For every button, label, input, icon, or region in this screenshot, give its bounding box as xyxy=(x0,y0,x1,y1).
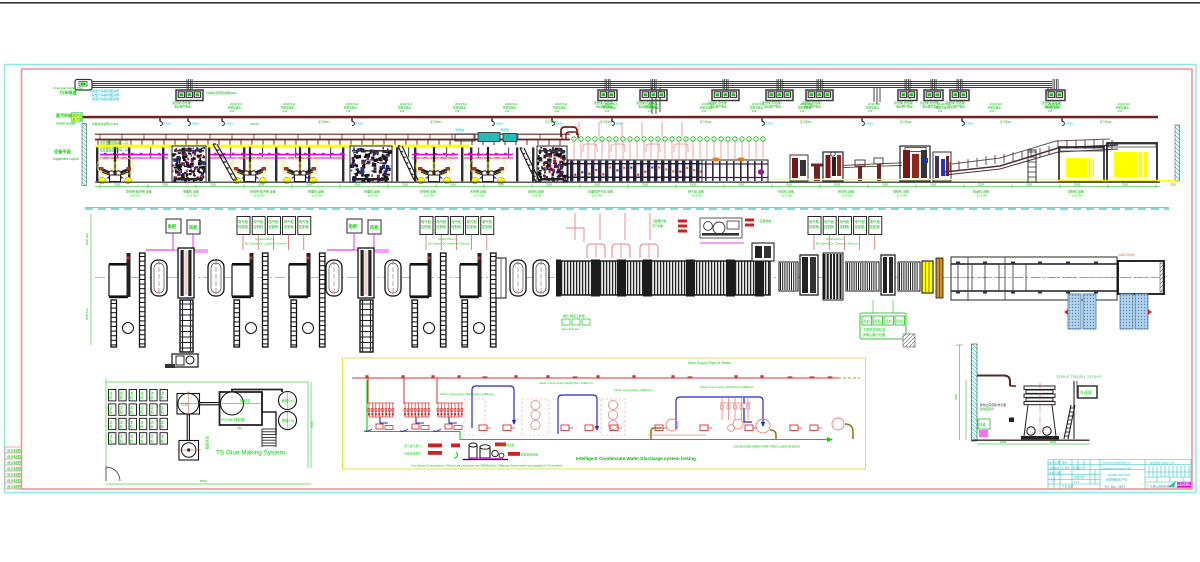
svg-text:电气柜: 电气柜 xyxy=(824,219,835,224)
svg-text:控制柜: 控制柜 xyxy=(238,224,249,229)
svg-text:电气柜: 电气柜 xyxy=(855,219,866,224)
svg-text:7000: 7000 xyxy=(310,421,314,428)
svg-text:By Carton Or Customer Electric: By Carton Or Customer Electric xyxy=(816,242,859,246)
svg-text:风机: 风机 xyxy=(189,224,198,231)
svg-text:2016 5x4: 2016 5x4 xyxy=(505,102,518,106)
svg-text:风机: 风机 xyxy=(863,319,870,324)
svg-text:电气柜: 电气柜 xyxy=(299,219,310,224)
svg-text:Main Supply Pipe of Steam: Main Supply Pipe of Steam xyxy=(688,361,731,365)
svg-text:铁架固定件: 铁架固定件 xyxy=(980,407,994,411)
svg-text:原纸架吸盘: 原纸架吸盘 xyxy=(1046,106,1059,110)
svg-text:DN50↓: DN50↓ xyxy=(356,122,364,126)
svg-text:控制柜: 控制柜 xyxy=(268,224,279,229)
svg-text:(2.5 万): (2.5 万) xyxy=(532,194,542,198)
svg-text:2x6: 2x6 xyxy=(605,109,610,113)
svg-text:控制柜: 控制柜 xyxy=(855,224,866,229)
svg-text:控制柜: 控制柜 xyxy=(451,224,462,229)
svg-text:(2.5 万): (2.5 万) xyxy=(1072,194,1082,198)
svg-text:2550: 2550 xyxy=(882,183,889,187)
svg-text:里胶CM₁: 里胶CM₁ xyxy=(282,418,296,423)
svg-text:蒸汽管DN: 蒸汽管DN xyxy=(600,120,612,124)
svg-text:原纸架吸盘: 原纸架吸盘 xyxy=(750,106,763,110)
svg-text:签名: 签名 xyxy=(1062,461,1068,465)
svg-text:蒸汽控制: 蒸汽控制 xyxy=(652,224,663,228)
svg-text:Equipment Layout: Equipment Layout xyxy=(53,157,79,161)
svg-text:控制柜: 控制柜 xyxy=(839,224,850,229)
svg-text:设计制图: 设计制图 xyxy=(7,454,21,459)
svg-text:DN50↓: DN50↓ xyxy=(616,122,624,126)
svg-text:风机: 风机 xyxy=(874,319,881,324)
svg-text:2016 5x4: 2016 5x4 xyxy=(990,102,1003,106)
svg-text:2550: 2550 xyxy=(786,183,793,187)
svg-text:蒸汽管DN: 蒸汽管DN xyxy=(430,120,442,124)
svg-text:2550: 2550 xyxy=(306,183,313,187)
svg-text:2550: 2550 xyxy=(258,183,265,187)
svg-text:控制柜: 控制柜 xyxy=(421,224,432,229)
svg-text:设计制图: 设计制图 xyxy=(7,460,21,465)
svg-text:蒸汽管DN: 蒸汽管DN xyxy=(700,120,712,124)
svg-text:2550: 2550 xyxy=(498,183,505,187)
svg-text:2016 5x4: 2016 5x4 xyxy=(702,102,715,106)
svg-text:电气柜: 电气柜 xyxy=(451,219,462,224)
svg-text:2550: 2550 xyxy=(738,183,745,187)
svg-text:上胶量控制: 上胶量控制 xyxy=(652,219,666,223)
svg-text:风管由客户自备: 风管由客户自备 xyxy=(863,332,886,337)
svg-text:设计制图: 设计制图 xyxy=(7,472,21,477)
svg-text:标准化: 标准化 xyxy=(1062,466,1070,470)
svg-text:2550: 2550 xyxy=(162,183,169,187)
svg-text:Speed Display Screen: Speed Display Screen xyxy=(1056,374,1102,379)
svg-text:电气柜: 电气柜 xyxy=(268,219,279,224)
svg-text:2x6: 2x6 xyxy=(1118,109,1123,113)
svg-text:2550: 2550 xyxy=(210,183,217,187)
svg-text:WJ250-250-1SF: WJ250-250-1SF xyxy=(1108,473,1130,477)
svg-text:蒸汽管DN: 蒸汽管DN xyxy=(1000,120,1012,124)
svg-text:(2.5 万): (2.5 万) xyxy=(692,194,702,198)
svg-text:原纸架吸盘: 原纸架吸盘 xyxy=(553,106,566,110)
svg-text:5250 160: 5250 160 xyxy=(85,308,89,320)
svg-text:2016 5x4: 2016 5x4 xyxy=(230,102,243,106)
svg-text:2550: 2550 xyxy=(1026,183,1033,187)
svg-text:Intelligent Condensate Water D: Intelligent Condensate Water Discharge s… xyxy=(576,456,696,461)
svg-text:设计制图: 设计制图 xyxy=(7,448,21,453)
svg-text:(2.5 万): (2.5 万) xyxy=(187,194,197,198)
svg-text:面胶CM₂: 面胶CM₂ xyxy=(282,398,296,403)
svg-text:特殊: 特殊 xyxy=(979,422,986,427)
svg-text:Steam Consumption 600Kg/Hour 1: Steam Consumption 600Kg/Hour 10Bar/prs xyxy=(440,392,495,396)
svg-text:设备平面: 设备平面 xyxy=(54,148,72,155)
svg-text:2x6: 2x6 xyxy=(752,109,757,113)
svg-text:2x6: 2x6 xyxy=(800,109,805,113)
svg-text:(2.5 万): (2.5 万) xyxy=(897,194,907,198)
svg-text:Control Room: Control Room xyxy=(255,237,274,241)
svg-text:电气柜: 电气柜 xyxy=(467,219,478,224)
svg-text:蒸汽管DN: 蒸汽管DN xyxy=(318,120,330,124)
svg-text:2016 5x4: 2016 5x4 xyxy=(605,102,618,106)
svg-text:原纸架吸盘: 原纸架吸盘 xyxy=(228,106,241,110)
svg-text:Steam Consumption 800Kg/Hour 1: Steam Consumption 800Kg/Hour 10Bar/prs xyxy=(539,381,594,385)
svg-text:Steam Consumption 900Kg/Hour 1: Steam Consumption 900Kg/Hour 10Bar/prs xyxy=(700,385,755,389)
svg-text:冷凝水回收: 冷凝水回收 xyxy=(500,443,514,447)
svg-text:(2.5 万): (2.5 万) xyxy=(842,194,852,198)
svg-text:设计: 设计 xyxy=(1049,461,1055,465)
svg-text:(2.5 万): (2.5 万) xyxy=(592,194,602,198)
svg-text:2550: 2550 xyxy=(834,183,841,187)
svg-text:广东佛山精锐机械有限公司: 广东佛山精锐机械有限公司 xyxy=(1147,485,1181,489)
svg-text:Condensate Water Main Pipe Low: Condensate Water Main Pipe Lower Bracket xyxy=(733,445,800,449)
svg-text:胶水管路: 胶水管路 xyxy=(205,436,210,450)
svg-text:1800: 1800 xyxy=(1000,440,1007,444)
svg-text:2016 5x4: 2016 5x4 xyxy=(1048,102,1061,106)
svg-text:控制柜: 控制柜 xyxy=(824,224,835,229)
svg-text:2016 5x4: 2016 5x4 xyxy=(283,102,296,106)
svg-text:2600: 2600 xyxy=(1050,440,1057,444)
svg-text:DN100: DN100 xyxy=(250,122,259,126)
svg-text:2550: 2550 xyxy=(930,183,937,187)
svg-text:原纸架吸盘: 原纸架吸盘 xyxy=(344,106,357,110)
svg-text:储胶区: 储胶区 xyxy=(240,398,251,403)
svg-text:2x6: 2x6 xyxy=(505,109,510,113)
svg-text:By Carton Or Customer Electric: By Carton Or Customer Electric xyxy=(245,242,288,246)
svg-text:DN50↓: DN50↓ xyxy=(966,122,974,126)
svg-text:5000 350: 5000 350 xyxy=(85,233,89,245)
svg-text:控制柜: 控制柜 xyxy=(253,224,264,229)
svg-text:蒸汽供给: 蒸汽供给 xyxy=(55,112,72,118)
svg-text:电柜: 电柜 xyxy=(168,223,177,230)
svg-text:(2.5 万): (2.5 万) xyxy=(474,194,484,198)
svg-text:2x6: 2x6 xyxy=(990,109,995,113)
svg-text:控制柜: 控制柜 xyxy=(299,224,310,229)
svg-text:2x6: 2x6 xyxy=(283,109,288,113)
svg-text:DN50↓: DN50↓ xyxy=(496,122,504,126)
svg-text:(2.5 万): (2.5 万) xyxy=(424,194,434,198)
svg-text:2016 5x4: 2016 5x4 xyxy=(455,102,468,106)
svg-text:4500: 4500 xyxy=(954,393,958,400)
svg-text:工艺: 工艺 xyxy=(1050,478,1056,482)
svg-text:行车吸盘: 行车吸盘 xyxy=(59,89,78,96)
svg-text:xxxxx city corporation co: xxxxx city corporation co xyxy=(1102,461,1131,465)
svg-text:糊化 糊度上胶量: 糊化 糊度上胶量 xyxy=(563,313,585,318)
svg-text:2x6: 2x6 xyxy=(702,109,707,113)
svg-text:原纸架吸盘: 原纸架吸盘 xyxy=(503,106,516,110)
svg-text:电气柜: 电气柜 xyxy=(436,219,447,224)
svg-text:2550: 2550 xyxy=(114,183,121,187)
svg-text:POUND储胶罐: POUND储胶罐 xyxy=(221,417,245,422)
svg-text:控制柜: 控制柜 xyxy=(809,224,820,229)
svg-text:9000: 9000 xyxy=(200,479,207,483)
svg-text:Your Steam Consumption in Whol: Your Steam Consumption in Whole Line pro… xyxy=(411,464,562,468)
svg-text:原纸架吸盘: 原纸架吸盘 xyxy=(281,106,294,110)
svg-text:共张 第张: 共张 第张 xyxy=(1062,485,1074,489)
svg-text:2550: 2550 xyxy=(450,183,457,187)
svg-text:设计制图: 设计制图 xyxy=(7,484,21,489)
svg-text:电气柜: 电气柜 xyxy=(238,219,249,224)
svg-text:DN50↓: DN50↓ xyxy=(164,122,172,126)
svg-text:By Carton Or Customer Electric: By Carton Or Customer Electric xyxy=(428,242,471,246)
svg-text:设计制图: 设计制图 xyxy=(7,478,21,483)
svg-text:蒸汽管DN: 蒸汽管DN xyxy=(1100,120,1112,124)
svg-text:Steam Supply: Steam Supply xyxy=(56,122,76,126)
svg-text:2550: 2550 xyxy=(1170,183,1177,187)
svg-text:冷凝水回收管: 冷凝水回收管 xyxy=(404,452,421,456)
svg-text:2016 5x4: 2016 5x4 xyxy=(800,102,813,106)
svg-text:2016 5x4: 2016 5x4 xyxy=(648,102,661,106)
svg-text:2550: 2550 xyxy=(1074,183,1081,187)
svg-text:日期: 日期 xyxy=(1055,471,1061,475)
svg-text:干整机送风机组: 干整机送风机组 xyxy=(863,327,886,332)
svg-text:设计制图: 设计制图 xyxy=(7,466,21,471)
svg-text:蒸汽管DN: 蒸汽管DN xyxy=(900,120,912,124)
svg-text:电气柜: 电气柜 xyxy=(809,219,820,224)
svg-text:2x6: 2x6 xyxy=(346,109,351,113)
svg-text:原纸架吸盘: 原纸架吸盘 xyxy=(798,106,811,110)
svg-text:原纸架吸盘: 原纸架吸盘 xyxy=(988,106,1001,110)
svg-text:2550: 2550 xyxy=(978,183,985,187)
svg-text:审核校对: 审核校对 xyxy=(1049,466,1060,470)
svg-text:2550: 2550 xyxy=(594,183,601,187)
svg-text:Steam Consumption 10Bar/prs: Steam Consumption 10Bar/prs xyxy=(614,388,653,392)
svg-text:车速屏: 车速屏 xyxy=(1080,389,1092,395)
svg-text:吸盘行车路线图说明: 吸盘行车路线图说明 xyxy=(92,96,119,101)
svg-text:电气柜: 电气柜 xyxy=(421,219,432,224)
svg-text:控制柜: 控制柜 xyxy=(284,224,295,229)
svg-text:2550: 2550 xyxy=(546,183,553,187)
svg-text:阶段标记: 阶段标记 xyxy=(1073,466,1084,470)
svg-text:紧纸架: 紧纸架 xyxy=(500,127,509,132)
svg-text:电气柜: 电气柜 xyxy=(839,219,850,224)
svg-text:2016 5x4: 2016 5x4 xyxy=(346,102,359,106)
svg-text:2550: 2550 xyxy=(642,183,649,187)
svg-text:天桥站: 天桥站 xyxy=(455,127,464,132)
svg-text:原纸架吸盘: 原纸架吸盘 xyxy=(1116,106,1129,110)
svg-text:2550: 2550 xyxy=(402,183,409,187)
svg-text:DN50↓: DN50↓ xyxy=(556,122,564,126)
svg-text:原纸架吸盘: 原纸架吸盘 xyxy=(646,106,659,110)
svg-text:电气柜: 电气柜 xyxy=(870,219,881,224)
svg-text:TS Glue Making System: TS Glue Making System xyxy=(216,450,285,457)
svg-text:2550: 2550 xyxy=(1122,183,1129,187)
svg-text:2016 5x4: 2016 5x4 xyxy=(400,102,413,106)
svg-text:电气柜: 电气柜 xyxy=(253,219,264,224)
svg-text:2550: 2550 xyxy=(354,183,361,187)
svg-text:原纸架吸盘: 原纸架吸盘 xyxy=(603,106,616,110)
svg-text:日期: 日期 xyxy=(1055,461,1061,465)
svg-text:管路流向说明 DN125: 管路流向说明 DN125 xyxy=(92,122,119,126)
svg-text:电气柜: 电气柜 xyxy=(284,219,295,224)
svg-text:电柜: 电柜 xyxy=(349,223,358,230)
svg-text:2x6: 2x6 xyxy=(230,109,235,113)
svg-text:原纸架吸盘: 原纸架吸盘 xyxy=(866,106,879,110)
svg-text:DN50↓: DN50↓ xyxy=(1066,122,1074,126)
svg-text:风机: 风机 xyxy=(370,224,379,231)
svg-text:原纸架吸盘: 原纸架吸盘 xyxy=(936,106,949,110)
svg-text:2016 5x4: 2016 5x4 xyxy=(938,102,951,106)
svg-text:(2.5 万): (2.5 万) xyxy=(368,194,378,198)
svg-text:(2.5 万): (2.5 万) xyxy=(130,194,140,198)
svg-text:2550: 2550 xyxy=(690,183,697,187)
svg-text:电动葫芦吸盘: 电动葫芦吸盘 xyxy=(896,105,913,109)
svg-text:原纸架吸盘: 原纸架吸盘 xyxy=(453,106,466,110)
svg-text:控制柜: 控制柜 xyxy=(482,224,493,229)
svg-text:行车轨道安装说明2000: 行车轨道安装说明2000 xyxy=(206,90,237,95)
svg-text:2016 5x4: 2016 5x4 xyxy=(555,102,568,106)
svg-text:WJ250-2200-2-9: WJ250-2200-2-9 xyxy=(1150,462,1174,466)
svg-text:风机: 风机 xyxy=(885,319,892,324)
svg-text:蒸汽进汽阀门: 蒸汽进汽阀门 xyxy=(404,444,421,448)
svg-text:回收系统: 回收系统 xyxy=(760,219,771,223)
svg-text:电动葫芦吸盘: 电动葫芦吸盘 xyxy=(174,105,191,109)
svg-text:批准: 批准 xyxy=(1049,471,1055,475)
svg-text:DN50↓: DN50↓ xyxy=(226,122,234,126)
svg-text:原纸架吸盘: 原纸架吸盘 xyxy=(398,106,411,110)
svg-text:DN50↓: DN50↓ xyxy=(192,122,200,126)
svg-text:原纸架吸盘: 原纸架吸盘 xyxy=(700,106,713,110)
svg-text:DN50↓: DN50↓ xyxy=(766,122,774,126)
svg-text:2x6: 2x6 xyxy=(938,109,943,113)
svg-text:瓦楞纸板生产线: 瓦楞纸板生产线 xyxy=(1106,477,1127,482)
svg-text:回收系统设备: 回收系统设备 xyxy=(521,453,538,457)
svg-text:2016 5x4: 2016 5x4 xyxy=(868,102,881,106)
svg-text:控制柜: 控制柜 xyxy=(436,224,447,229)
svg-text:蒸汽管DN: 蒸汽管DN xyxy=(800,120,812,124)
svg-text:重量比例: 重量比例 xyxy=(1074,475,1085,479)
svg-text:2x6: 2x6 xyxy=(1048,109,1053,113)
svg-text:machinery industry co ltd: machinery industry co ltd xyxy=(1102,467,1131,471)
svg-text:(2.5 万): (2.5 万) xyxy=(254,194,264,198)
svg-text:(2.5 万): (2.5 万) xyxy=(312,194,322,198)
svg-text:(2.5 万): (2.5 万) xyxy=(977,194,987,198)
svg-text:电动葫芦吸盘: 电动葫芦吸盘 xyxy=(764,105,781,109)
svg-text:电动葫芦吸盘: 电动葫芦吸盘 xyxy=(948,105,965,109)
svg-text:2x6: 2x6 xyxy=(455,109,460,113)
svg-text:2x6: 2x6 xyxy=(400,109,405,113)
svg-text:控制柜: 控制柜 xyxy=(870,224,881,229)
svg-text:Control Room: Control Room xyxy=(438,237,457,241)
svg-text:蒸汽管DN: 蒸汽管DN xyxy=(545,120,557,124)
svg-text:2x6: 2x6 xyxy=(868,109,873,113)
svg-text:2016 5x4: 2016 5x4 xyxy=(1118,102,1131,106)
svg-text:YB. BA. VER: YB. BA. VER xyxy=(1104,485,1125,489)
svg-text:风机: 风机 xyxy=(896,319,903,324)
svg-text:(2.5 万): (2.5 万) xyxy=(782,194,792,198)
svg-text:DN50↓: DN50↓ xyxy=(866,122,874,126)
svg-text:Control Room: Control Room xyxy=(826,237,845,241)
svg-text:2x6: 2x6 xyxy=(555,109,560,113)
svg-text:电气柜: 电气柜 xyxy=(482,219,493,224)
svg-text:2x6: 2x6 xyxy=(648,109,653,113)
svg-text:1400 52pm: 1400 52pm xyxy=(1118,253,1135,257)
svg-text:2016 5x4: 2016 5x4 xyxy=(752,102,765,106)
svg-text:控制柜: 控制柜 xyxy=(467,224,478,229)
svg-text:glue 240 gsm: glue 240 gsm xyxy=(562,327,581,331)
svg-text:精锐机械: 精锐机械 xyxy=(1177,481,1192,486)
svg-text:1:75: 1:75 xyxy=(1074,480,1080,484)
svg-text:打胶: 打胶 xyxy=(181,402,189,407)
svg-text:2台: 2台 xyxy=(237,425,242,430)
